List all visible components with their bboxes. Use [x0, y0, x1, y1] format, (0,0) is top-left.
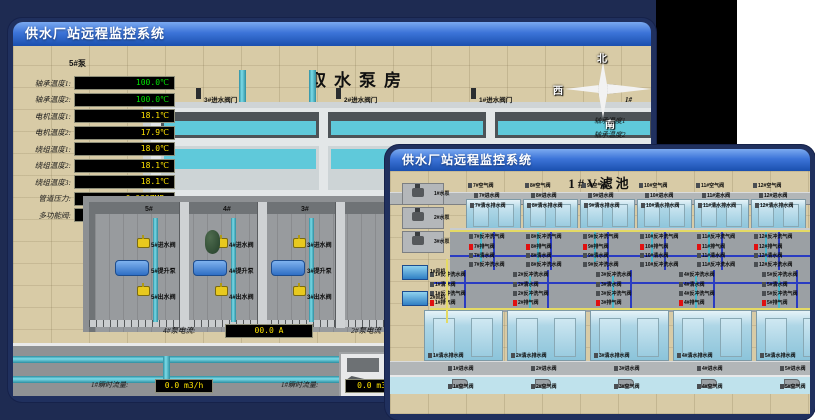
exhaust-valve-icon[interactable] — [697, 244, 701, 250]
gallery-valve-label: 2#排气阀 — [513, 299, 539, 306]
valve-icon[interactable] — [596, 272, 600, 277]
sensor-label: 绕组温度2: — [17, 160, 71, 171]
valve-icon[interactable] — [696, 183, 700, 188]
lift-pump-icon[interactable] — [115, 260, 149, 276]
sensor-value: 100.0℃ — [74, 76, 175, 90]
sensor-value: 18.1℃ — [74, 159, 175, 173]
valve-icon[interactable] — [469, 253, 473, 258]
filter-lane — [471, 318, 493, 357]
gate-valve-icon[interactable] — [336, 88, 341, 99]
valve-icon[interactable] — [582, 183, 586, 188]
channel-water — [164, 149, 316, 169]
air-valve-label: 8#空气阀 — [525, 182, 551, 189]
drain-valve-label: 4#清水排水阀 — [677, 352, 713, 359]
valve-icon[interactable] — [526, 234, 530, 239]
sensor-row: 绕组温度1:18.0℃ — [17, 141, 177, 158]
flow-value: 0.0 m3/h — [155, 379, 213, 393]
gallery-valve-label: 9#排气阀 — [583, 243, 609, 250]
outlet-valve-label: 3#出水阀 — [307, 292, 332, 301]
drain-valve-label: 11#清水排水阀 — [698, 202, 736, 209]
valve-icon[interactable] — [527, 203, 531, 208]
gallery-valve-label: 12#反冲洗气阀 — [754, 233, 792, 240]
valve-icon[interactable] — [511, 353, 515, 358]
valve-icon[interactable] — [526, 253, 530, 258]
bay-number-label: 3# — [301, 206, 309, 213]
air-valve-label: 11#空气阀 — [696, 182, 724, 189]
exhaust-valve-icon[interactable] — [762, 300, 766, 306]
drain-valve-label: 3#清水排水阀 — [594, 352, 630, 359]
inlet-valve-label: 4#进水阀 — [697, 365, 723, 372]
exhaust-valve-icon[interactable] — [754, 244, 758, 250]
drain-valve-label: 12#清水排水阀 — [755, 202, 793, 209]
valve-icon[interactable] — [640, 234, 644, 239]
bay-number-label: 5# — [145, 206, 153, 213]
outlet-valve-label: 4#出水阀 — [229, 292, 254, 301]
pump-current-label: 2#泵电流 — [351, 325, 381, 336]
valve-icon[interactable] — [640, 253, 644, 258]
gallery-valve-label: 3#反冲洗水阀 — [596, 271, 632, 278]
valve-icon[interactable] — [753, 183, 757, 188]
gallery-valve-label: 8#排气阀 — [526, 243, 552, 250]
lift-pump-label: 3#提升泵 — [307, 266, 332, 275]
sensor-label: 电机温度2: — [17, 127, 71, 138]
front-window-title: 供水厂站远程监控系统 — [402, 153, 532, 167]
valve-icon[interactable] — [614, 366, 618, 371]
inlet-valve-label: 3#进水阀 — [614, 365, 640, 372]
gallery-valve-label: 11#清水阀 — [697, 252, 725, 259]
valve-icon[interactable] — [697, 384, 701, 389]
exhaust-valve-icon[interactable] — [640, 244, 644, 250]
inlet-valve-label: 10#进水阀 — [645, 192, 673, 199]
air-valve-label: 5#空气阀 — [780, 383, 806, 390]
sensor-row: 电机温度1:18.1℃ — [17, 108, 177, 125]
valve-icon[interactable] — [583, 262, 587, 267]
black-panel — [656, 0, 737, 150]
sensor-value: 18.1℃ — [74, 175, 175, 189]
inlet-valve-label: 3#进水阀 — [307, 240, 332, 249]
inlet-valve-label: 4#进水阀 — [229, 240, 254, 249]
blower-label: 2#风机 — [430, 294, 446, 301]
valve-icon[interactable] — [754, 253, 758, 258]
valve-icon[interactable] — [513, 282, 517, 287]
exhaust-valve-icon[interactable] — [513, 300, 517, 306]
valve-icon[interactable] — [697, 234, 701, 239]
inlet-valve-label: 2#进水阀 — [531, 365, 557, 372]
valve-icon[interactable] — [780, 384, 784, 389]
valve-icon[interactable] — [469, 262, 473, 267]
valve-icon[interactable] — [762, 272, 766, 277]
filter-lane — [637, 318, 659, 357]
valve-icon[interactable] — [594, 353, 598, 358]
sensor-value: 100.0℃ — [74, 93, 175, 107]
gallery-valve-label: 4#清水阀 — [679, 281, 705, 288]
inlet-gate-valve-label: 3#进水阀门 — [204, 94, 237, 104]
gallery-valve-label: 5#反冲洗气阀 — [762, 290, 798, 297]
air-duct-icon — [446, 259, 448, 323]
valve-icon[interactable] — [614, 384, 618, 389]
valve-icon[interactable] — [584, 203, 588, 208]
drain-valve-label: 10#清水排水阀 — [641, 202, 679, 209]
inlet-valve-label: 12#进水阀 — [759, 192, 787, 199]
inlet-valve-label: 9#进水阀 — [588, 192, 614, 199]
sensor-label: 多功能阀: — [17, 210, 71, 221]
drain-valve-label: 5#清水排水阀 — [760, 352, 796, 359]
sensor-row: 电机温度2:17.9℃ — [17, 125, 177, 142]
exhaust-valve-icon[interactable] — [679, 300, 683, 306]
outlet-valve-icon[interactable] — [293, 286, 306, 296]
gallery-valve-label: 9#反冲洗水阀 — [583, 261, 619, 268]
valve-icon[interactable] — [513, 291, 517, 296]
gallery-valve-label: 12#排气阀 — [754, 243, 782, 250]
inlet-valve-label: 1#进水阀 — [448, 365, 474, 372]
valve-icon[interactable] — [596, 291, 600, 296]
valve-icon[interactable] — [679, 291, 683, 296]
bay-number-label: 4# — [223, 206, 231, 213]
gallery-valve-label: 4#排气阀 — [679, 299, 705, 306]
compass-west: 西 — [553, 82, 563, 97]
lift-pump-label: 4#提升泵 — [229, 266, 254, 275]
exhaust-valve-icon[interactable] — [526, 244, 530, 250]
dosing-tank-icon — [205, 230, 220, 254]
gallery-valve-label: 11#排气阀 — [697, 243, 725, 250]
inlet-gate-valve-label: 2#进水阀门 — [344, 94, 377, 104]
sensor-label: 绕组温度1: — [17, 144, 71, 155]
valve-icon[interactable] — [762, 291, 766, 296]
gallery-valve-label: 10#反冲洗气阀 — [640, 233, 678, 240]
air-valve-label: 1#空气阀 — [448, 383, 474, 390]
back-window-titlebar[interactable]: 供水厂站远程监控系统 — [13, 22, 651, 46]
gate-valve-icon[interactable] — [471, 88, 476, 99]
gallery-valve-label: 2#反冲洗水阀 — [513, 271, 549, 278]
gallery-valve-label: 8#反冲洗气阀 — [526, 233, 562, 240]
valve-icon[interactable] — [469, 234, 473, 239]
inlet-valve-icon[interactable] — [137, 238, 150, 248]
flow-label: 1#瞬时流量: — [91, 380, 128, 390]
backwash-pump-icon[interactable] — [412, 212, 424, 221]
lift-pump-icon[interactable] — [271, 260, 305, 276]
sensor-value: 18.1℃ — [74, 109, 175, 123]
valve-icon[interactable] — [641, 203, 645, 208]
intake-channel — [328, 112, 486, 138]
blower-icon[interactable] — [402, 265, 428, 280]
valve-icon[interactable] — [428, 353, 432, 358]
valve-icon[interactable] — [697, 253, 701, 258]
valve-icon[interactable] — [448, 366, 452, 371]
air-valve-label: 7#空气阀 — [468, 182, 494, 189]
sensor-label: 轴承温度2: — [17, 94, 71, 105]
right-partial-label: 轴承温度1 — [594, 116, 626, 126]
desktop: 供水厂站远程监控系统 取水泵房 3#进水阀门2#进水阀门1#进水阀门 5#泵 轴… — [0, 0, 815, 420]
gallery-valve-label: 8#清水阀 — [526, 252, 552, 259]
channel-water — [331, 121, 483, 135]
gallery-valve-label: 7#反冲洗水阀 — [469, 261, 505, 268]
gallery-valve-label: 8#反冲洗水阀 — [526, 261, 562, 268]
flow-label: 1#瞬时流量: — [281, 380, 318, 390]
blower-icon[interactable] — [402, 291, 428, 306]
valve-icon[interactable] — [474, 193, 478, 198]
outlet-valve-label: 5#出水阀 — [151, 292, 176, 301]
valve-icon[interactable] — [468, 183, 472, 188]
sensor-row: 轴承温度2:100.0℃ — [17, 92, 177, 109]
gallery-valve-label: 10#清水阀 — [640, 252, 668, 259]
sensor-row: 绕组温度2:18.1℃ — [17, 158, 177, 175]
air-valve-label: 12#空气阀 — [753, 182, 781, 189]
right-partial-label: 1# — [625, 96, 632, 104]
valve-icon[interactable] — [640, 262, 644, 267]
pump5-header: 5#泵 — [69, 58, 177, 69]
gate-valve-icon[interactable] — [196, 88, 201, 99]
filter-lane — [803, 318, 810, 357]
channel-water — [164, 121, 316, 135]
valve-icon[interactable] — [583, 234, 587, 239]
lift-pump-icon[interactable] — [193, 260, 227, 276]
valve-icon[interactable] — [448, 384, 452, 389]
gallery-valve-label: 11#反冲洗气阀 — [697, 233, 735, 240]
bay-column — [179, 202, 189, 328]
air-valve-label: 3#空气阀 — [614, 383, 640, 390]
gallery-valve-label: 3#清水阀 — [596, 281, 622, 288]
inlet-valve-label: 7#进水阀 — [474, 192, 500, 199]
air-valve-label: 9#空气阀 — [582, 182, 608, 189]
inlet-gate-valve-label: 1#进水阀门 — [479, 94, 512, 104]
gallery-valve-label: 10#排气阀 — [640, 243, 668, 250]
backwash-pump-label: 2#水泵 — [434, 214, 450, 221]
scene-title-pump-house: 取水泵房 — [309, 66, 409, 91]
exhaust-valve-icon[interactable] — [596, 300, 600, 306]
valve-icon[interactable] — [531, 384, 535, 389]
valve-icon[interactable] — [698, 203, 702, 208]
valve-icon[interactable] — [759, 193, 763, 198]
filter-lane — [554, 318, 576, 357]
air-valve-label: 4#空气阀 — [697, 383, 723, 390]
backwash-pump-icon[interactable] — [412, 188, 424, 197]
inlet-valve-label: 11#进水阀 — [702, 192, 730, 199]
sensor-row: 绕组温度3:18.1℃ — [17, 174, 177, 191]
sensor-label: 管道压力: — [17, 193, 71, 204]
intake-channel — [161, 112, 319, 138]
valve-icon[interactable] — [531, 193, 535, 198]
valve-icon[interactable] — [679, 282, 683, 287]
valve-icon[interactable] — [430, 282, 434, 287]
gallery-valve-label: 4#反冲洗气阀 — [679, 290, 715, 297]
right-partial-label: 轴承温度2 — [594, 130, 626, 140]
inlet-valve-icon[interactable] — [293, 238, 306, 248]
valve-icon[interactable] — [639, 183, 643, 188]
valve-icon[interactable] — [513, 272, 517, 277]
gallery-valve-label: 10#反冲洗水阀 — [640, 261, 678, 268]
gallery-valve-label: 7#反冲洗气阀 — [469, 233, 505, 240]
sensor-value: 17.9℃ — [74, 126, 175, 140]
filter-lane — [720, 318, 742, 357]
valve-icon[interactable] — [677, 353, 681, 358]
valve-icon[interactable] — [531, 366, 535, 371]
bay-column — [257, 202, 267, 328]
valve-icon[interactable] — [679, 272, 683, 277]
gallery-valve-label: 9#清水阀 — [583, 252, 609, 259]
valve-icon[interactable] — [525, 183, 529, 188]
valve-icon[interactable] — [760, 353, 764, 358]
bay-column — [335, 202, 345, 328]
air-pipe-icon — [450, 230, 810, 232]
valve-icon[interactable] — [645, 193, 649, 198]
gallery-valve-label: 3#排气阀 — [596, 299, 622, 306]
gallery-valve-label: 7#清水阀 — [469, 252, 495, 259]
compass-north: 北 — [597, 50, 607, 65]
valve-icon[interactable] — [583, 253, 587, 258]
valve-icon[interactable] — [754, 262, 758, 267]
gallery-valve-label: 3#反冲洗气阀 — [596, 290, 632, 297]
inlet-valve-label: 8#进水阀 — [531, 192, 557, 199]
front-window-titlebar[interactable]: 供水厂站远程监控系统 — [390, 149, 810, 171]
gallery-valve-label: 1#清水阀 — [430, 281, 456, 288]
exhaust-valve-icon[interactable] — [469, 244, 473, 250]
outlet-valve-icon[interactable] — [137, 286, 150, 296]
valve-icon[interactable] — [470, 203, 474, 208]
gallery-valve-label: 12#反冲洗水阀 — [754, 261, 792, 268]
gallery-valve-label: 5#排气阀 — [762, 299, 788, 306]
gallery-valve-label: 4#反冲洗水阀 — [679, 271, 715, 278]
gallery-valve-label: 5#清水阀 — [762, 281, 788, 288]
blower-label: 1#风机 — [430, 268, 446, 275]
valve-icon[interactable] — [697, 366, 701, 371]
drain-valve-label: 1#清水排水阀 — [428, 352, 464, 359]
inlet-valve-label: 5#进水阀 — [151, 240, 176, 249]
lift-pump-label: 5#提升泵 — [151, 266, 176, 275]
valve-icon[interactable] — [697, 262, 701, 267]
pump-current-value: 00.0 A — [225, 324, 313, 338]
valve-icon[interactable] — [762, 282, 766, 287]
valve-icon[interactable] — [588, 193, 592, 198]
gallery-valve-label: 9#反冲洗气阀 — [583, 233, 619, 240]
gallery-valve-label: 7#排气阀 — [469, 243, 495, 250]
exhaust-valve-icon[interactable] — [583, 244, 587, 250]
backwash-pump-label: 3#水泵 — [434, 238, 450, 245]
air-valve-label: 10#空气阀 — [639, 182, 667, 189]
window-v-filter-pool[interactable]: 供水厂站远程监控系统 1#V滤池 7#空气阀8#空气阀9#空气阀10#空气阀11… — [385, 145, 815, 420]
sensor-label: 轴承温度1: — [17, 78, 71, 89]
back-window-title: 供水厂站远程监控系统 — [25, 26, 165, 41]
air-valve-label: 2#空气阀 — [531, 383, 557, 390]
valve-icon[interactable] — [702, 193, 706, 198]
gallery-valve-label: 2#清水阀 — [513, 281, 539, 288]
drain-valve-label: 9#清水排水阀 — [584, 202, 620, 209]
gallery-valve-label: 5#反冲洗水阀 — [762, 271, 798, 278]
drain-valve-label: 8#清水排水阀 — [527, 202, 563, 209]
backwash-pump-icon[interactable] — [412, 236, 424, 245]
sensor-label: 绕组温度3: — [17, 177, 71, 188]
valve-icon[interactable] — [754, 234, 758, 239]
outlet-valve-icon[interactable] — [215, 286, 228, 296]
drain-valve-label: 2#清水排水阀 — [511, 352, 547, 359]
scene-v-filter-pool: 1#V滤池 7#空气阀8#空气阀9#空气阀10#空气阀11#空气阀12#空气阀7… — [390, 171, 810, 414]
sensor-row: 轴承温度1:100.0℃ — [17, 75, 177, 92]
valve-icon[interactable] — [755, 203, 759, 208]
gallery-valve-label: 11#反冲洗水阀 — [697, 261, 735, 268]
pump-current-label: 4#泵电流: — [163, 325, 196, 336]
intake-channel — [161, 146, 319, 190]
gallery-valve-label: 12#清水阀 — [754, 252, 782, 259]
valve-icon[interactable] — [596, 282, 600, 287]
sensor-value: 18.0℃ — [74, 142, 175, 156]
valve-icon[interactable] — [526, 262, 530, 267]
gallery-valve-label: 2#反冲洗气阀 — [513, 290, 549, 297]
backwash-pump-label: 1#水泵 — [434, 190, 450, 197]
sensor-label: 电机温度1: — [17, 111, 71, 122]
valve-icon[interactable] — [780, 366, 784, 371]
inlet-valve-label: 5#进水阀 — [780, 365, 806, 372]
drain-valve-label: 7#清水排水阀 — [470, 202, 506, 209]
